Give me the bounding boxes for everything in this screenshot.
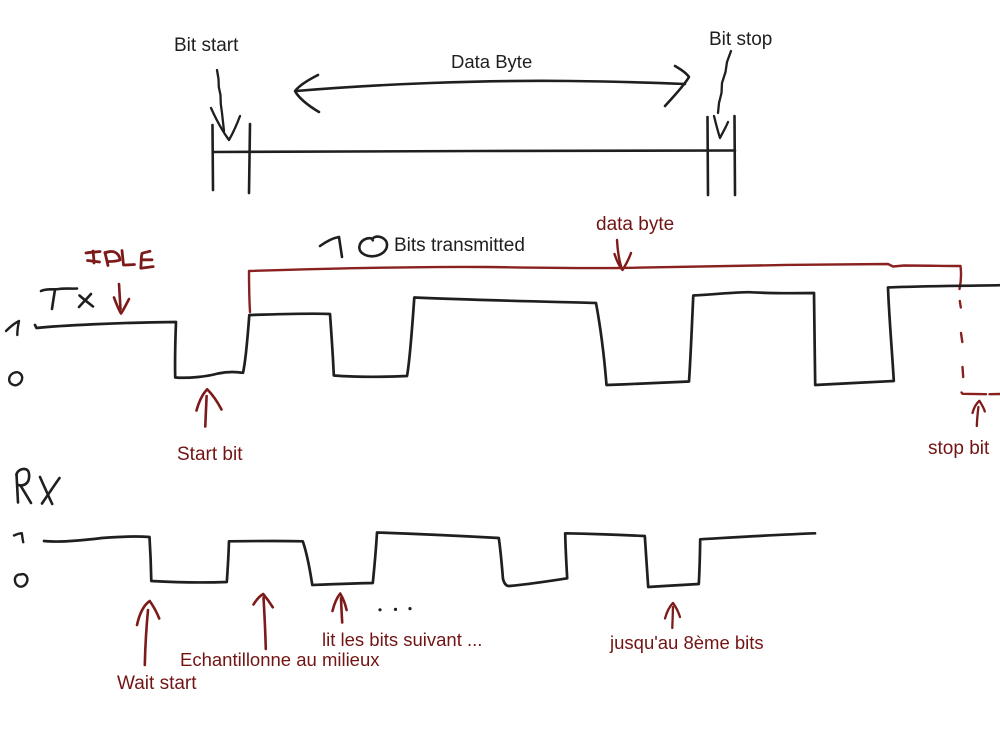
svg-text:Echantillonne au milieux: Echantillonne au milieux (180, 649, 380, 670)
svg-text:Data Byte: Data Byte (451, 51, 532, 72)
svg-text:Bits transmitted: Bits transmitted (394, 235, 525, 256)
svg-text:data byte: data byte (596, 214, 674, 235)
svg-text:stop bit: stop bit (928, 438, 990, 459)
svg-text:jusqu'au 8ème bits: jusqu'au 8ème bits (609, 632, 764, 653)
svg-text:lit les bits suivant ...: lit les bits suivant ... (322, 629, 482, 650)
svg-text:Bit stop: Bit stop (709, 29, 772, 50)
svg-text:Wait start: Wait start (117, 673, 197, 694)
svg-text:Bit start: Bit start (174, 35, 239, 56)
svg-text:Start bit: Start bit (177, 444, 243, 465)
